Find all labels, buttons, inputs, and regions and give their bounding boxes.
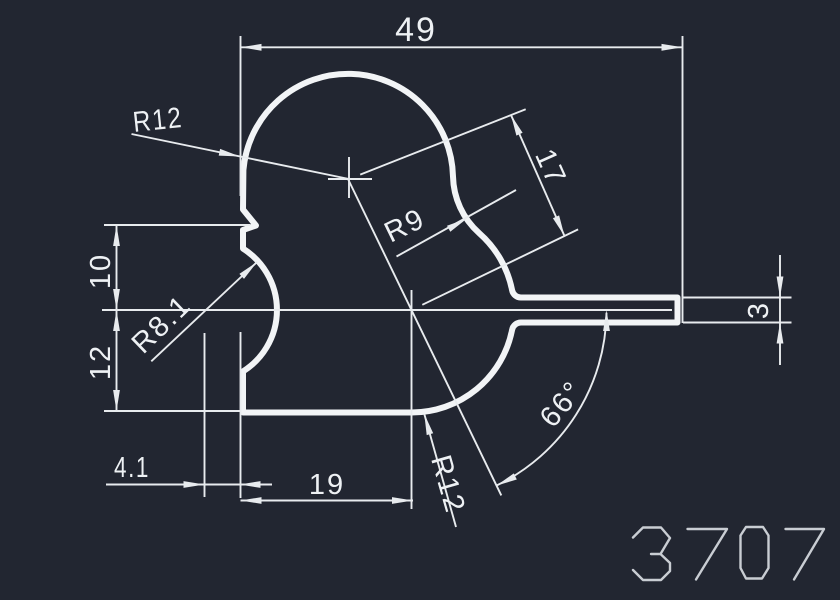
svg-text:12: 12: [85, 344, 117, 380]
svg-text:3: 3: [743, 301, 775, 319]
svg-text:R12: R12: [131, 102, 184, 139]
svg-text:19: 19: [309, 469, 345, 501]
svg-text:49: 49: [395, 11, 437, 49]
svg-text:10: 10: [85, 253, 117, 289]
svg-text:4.1: 4.1: [114, 452, 150, 484]
